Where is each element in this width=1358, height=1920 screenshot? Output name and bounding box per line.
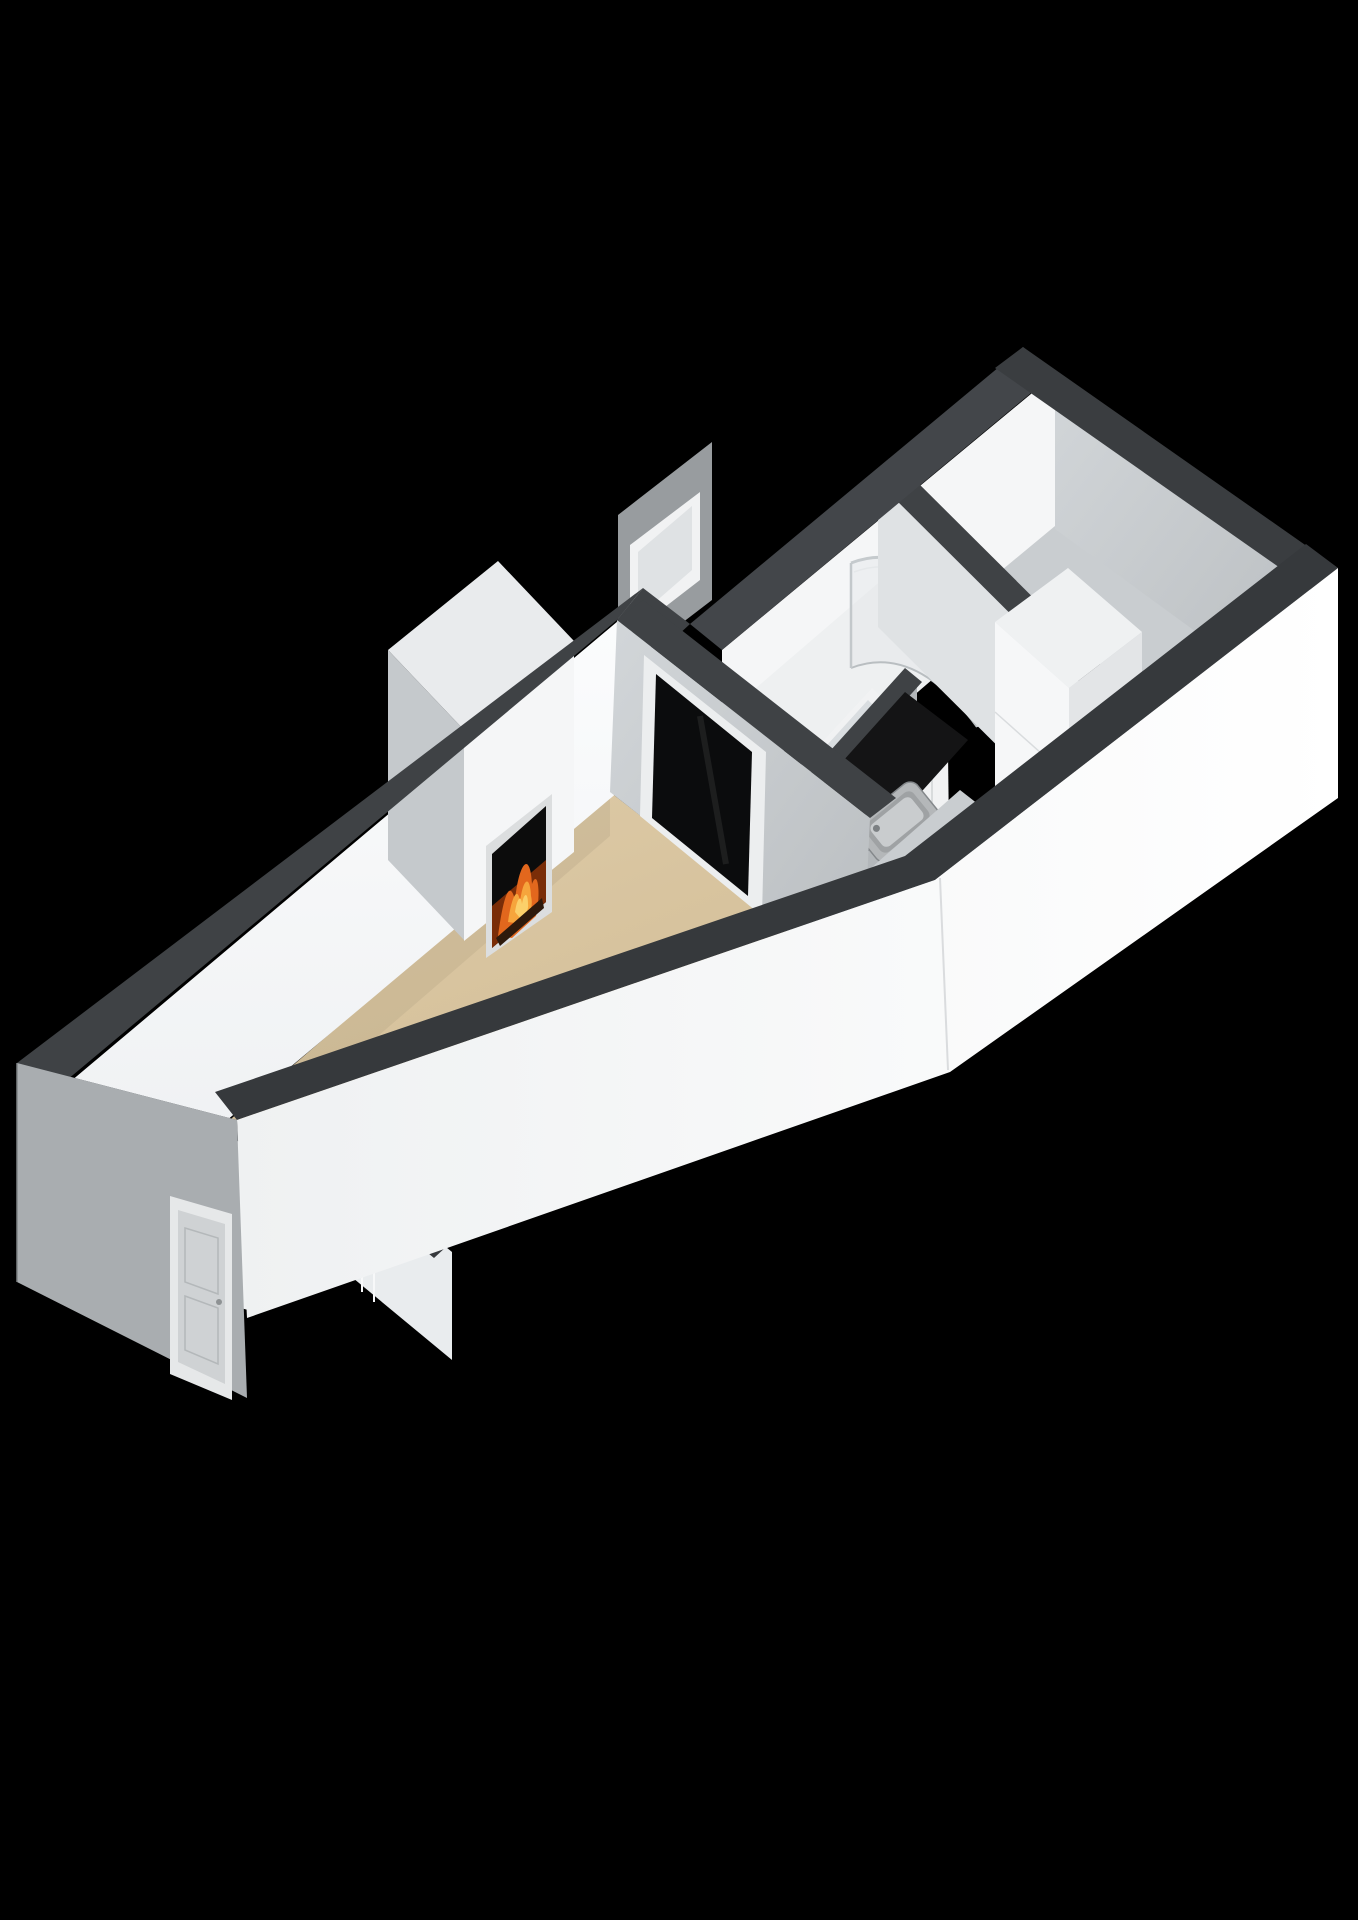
floorplan-stage bbox=[0, 0, 1358, 1920]
door-knob-icon bbox=[216, 1299, 222, 1305]
floorplan-3d-canvas[interactable] bbox=[0, 0, 1358, 1920]
front-door bbox=[170, 1196, 232, 1400]
